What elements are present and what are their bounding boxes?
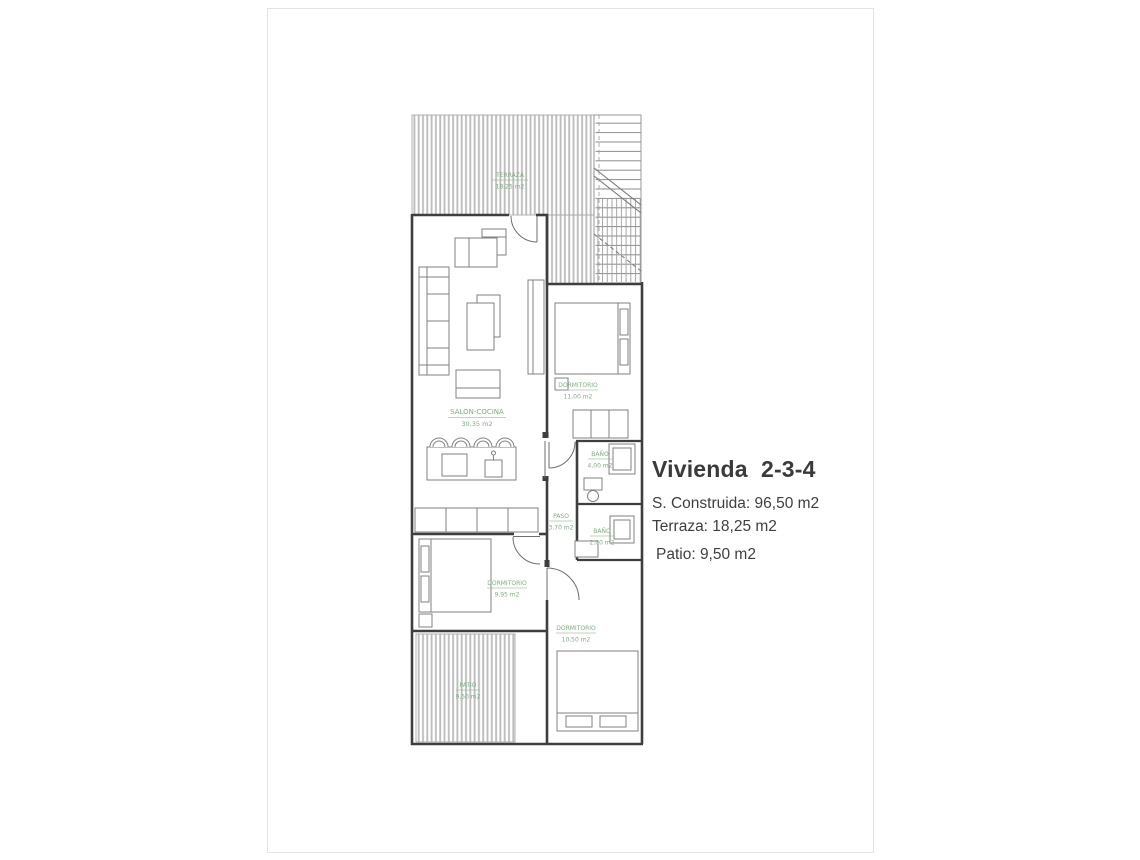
unit-info: Vivienda 2-3-4 S. Construida: 96,50 m2 T…	[652, 456, 892, 566]
bed-dorm1	[555, 303, 630, 390]
canvas: { "info": { "title": "Vivienda 2-3-4", "…	[0, 0, 1140, 860]
staircase	[594, 115, 641, 283]
coffee-table	[467, 295, 500, 350]
wardrobe-dorm1	[573, 410, 628, 438]
sofa	[419, 267, 449, 375]
room-name: BAÑO	[593, 528, 611, 535]
shower-bano1	[609, 444, 635, 474]
armchair-top-left	[455, 238, 497, 267]
room-area: 10,50 m2	[562, 637, 591, 644]
room-area: 9,50 m2	[456, 694, 481, 701]
room-name: DORMITORIO	[487, 580, 527, 587]
armchair-bottom	[456, 370, 500, 398]
room-area: 4,00 m2	[588, 463, 613, 470]
toilet-bano1	[584, 478, 602, 502]
built-area-line: S. Construida: 96,50 m2	[652, 492, 892, 515]
side-unit	[528, 280, 544, 374]
door-dorm2-arc	[513, 537, 540, 564]
room-name: TERRAZA	[495, 172, 525, 179]
label-paso: PASO 3,70 m2	[549, 513, 574, 532]
room-name: DORMITORIO	[558, 382, 598, 389]
terraza-deck	[412, 115, 594, 284]
label-salon-cocina: SALON-COCINA 30,35 m2	[448, 408, 506, 428]
bed-dorm3	[557, 651, 638, 731]
room-name: SALON-COCINA	[450, 408, 504, 416]
room-area: 2,00 m2	[590, 540, 615, 547]
room-name: BAÑO	[591, 451, 609, 458]
room-area: 3,70 m2	[549, 525, 574, 532]
room-area: 30,35 m2	[461, 420, 492, 428]
kitchen-counter	[415, 508, 538, 532]
door-dorm1-arc	[549, 442, 575, 468]
room-area: 11,00 m2	[564, 394, 593, 401]
kitchen-island	[427, 447, 516, 480]
label-dormitorio-3: DORMITORIO 10,50 m2	[556, 625, 596, 644]
bar-stools	[430, 438, 514, 447]
room-area: 18,25 m2	[496, 184, 525, 191]
door-terrace-arc	[511, 216, 537, 242]
patio-area-line: Patio: 9,50 m2	[652, 543, 892, 566]
label-dormitorio-1: DORMITORIO 11,00 m2	[558, 382, 598, 401]
terrace-area-line: Terraza: 18,25 m2	[652, 515, 892, 538]
label-dormitorio-2: DORMITORIO 9,95 m2	[487, 580, 527, 599]
floor-plan: TERRAZA 18,25 m2 SALON-COCINA 30,35 m2 D…	[408, 110, 648, 750]
unit-title: Vivienda 2-3-4	[652, 456, 892, 483]
bed-dorm2	[419, 539, 491, 627]
room-name: DORMITORIO	[556, 625, 596, 632]
room-area: 9,95 m2	[495, 592, 520, 599]
room-name: PATIO	[459, 682, 476, 689]
room-name: PASO	[553, 513, 569, 520]
door-dorm3-arc	[547, 568, 579, 600]
